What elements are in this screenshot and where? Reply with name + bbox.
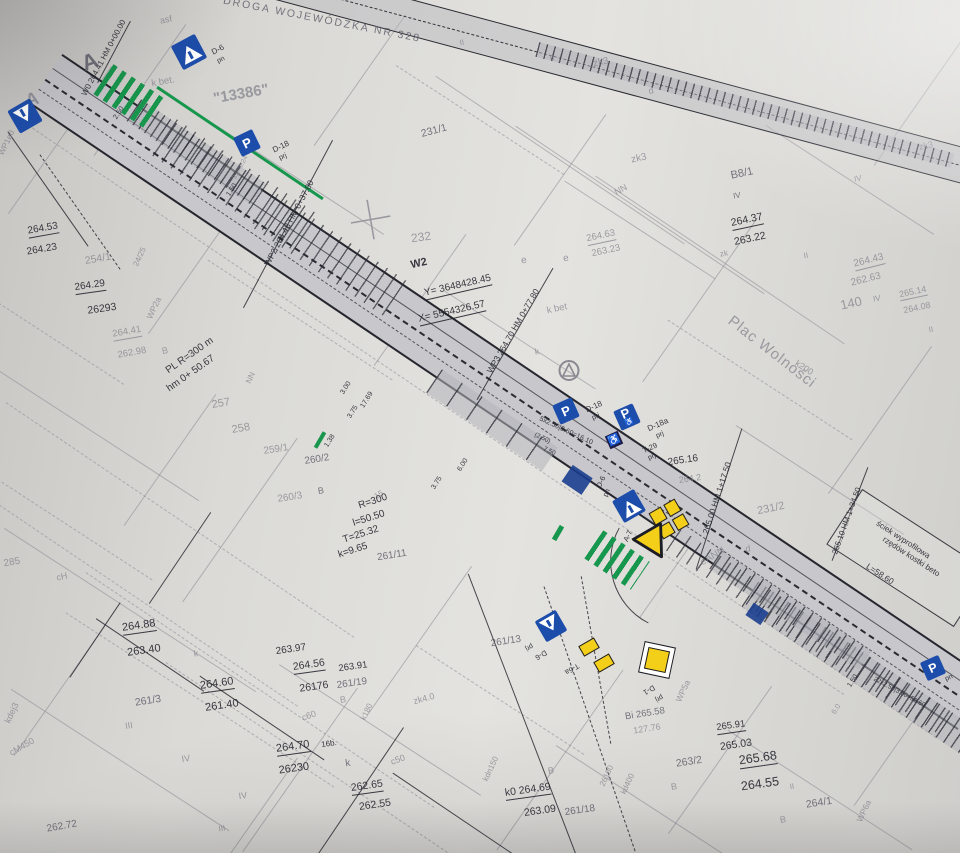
map-label: II — [928, 326, 934, 335]
priority-road-sign-icon — [638, 641, 676, 679]
map-label: 262.65 — [350, 779, 384, 796]
map-label: k180 — [360, 702, 375, 721]
map-label: 264.08 — [903, 301, 932, 316]
map-label: 16b. — [321, 739, 338, 749]
map-label: 263/2 — [675, 755, 703, 769]
map-label: B — [670, 782, 677, 792]
map-label: 264.60 — [199, 676, 234, 694]
map-label: c50 — [390, 753, 407, 766]
map-label: k bet — [546, 302, 568, 316]
map-label: kdn150 — [482, 755, 500, 782]
map-label: 264.55 — [740, 775, 780, 793]
map-label: cM450 — [8, 736, 36, 757]
map-label: kd400 — [620, 772, 636, 795]
map-label: B — [339, 695, 346, 705]
map-label: 264.41 — [112, 325, 143, 341]
cadastral-line — [0, 493, 298, 706]
cadastral-line — [11, 689, 230, 831]
map-label: III — [218, 825, 226, 834]
map-label: cH — [56, 571, 69, 582]
map-label: 264.56 — [292, 658, 326, 675]
map-label: 263.23 — [591, 243, 621, 258]
map-label: 26293 — [87, 302, 117, 316]
cadastral-line — [368, 566, 472, 714]
map-label: 127.76 — [633, 722, 662, 735]
disabled-parking-sign-icon: P♿ — [613, 403, 641, 431]
map-label: 264.29 — [74, 279, 106, 295]
map-label: 3.75 — [346, 404, 359, 419]
map-label: 264.43 — [853, 252, 886, 271]
map-label: 231/1 — [420, 123, 448, 140]
cadastral-line — [182, 438, 298, 602]
boundary-line — [69, 602, 120, 677]
map-label: R=300 — [357, 493, 388, 512]
map-label: IV — [181, 754, 191, 764]
map-label: pn — [216, 55, 226, 65]
boundary-line — [393, 773, 518, 853]
map-label: k — [345, 759, 351, 770]
map-label: e — [562, 254, 569, 265]
map-label: 261/19 — [336, 677, 368, 691]
map-label: 263.91 — [338, 660, 368, 673]
map-label: zk4.0 — [412, 692, 435, 706]
map-label: c60 — [301, 709, 318, 722]
map-label: II — [803, 252, 809, 261]
map-label: k0 264.69 — [504, 782, 551, 801]
map-label: Bi 265.58 — [624, 706, 665, 722]
map-label: IV — [873, 294, 882, 303]
map-label: B8/1 — [730, 166, 754, 181]
map-label: Plac Wolności — [725, 313, 819, 391]
map-label: 264.53 — [27, 221, 59, 238]
map-label: 3.00 — [339, 380, 352, 395]
map-label: 265.14 — [898, 285, 927, 301]
map-label: k bet. — [151, 75, 176, 88]
boundary-line — [149, 512, 211, 604]
map-label: 261/18 — [564, 804, 596, 818]
map-label: 257 — [211, 397, 231, 411]
map-label: D-1 — [642, 684, 656, 697]
map-label: 3.75 — [430, 475, 443, 490]
cadastral-line — [564, 181, 716, 280]
map-label: 17.69 — [359, 391, 374, 410]
map-label: 254/1 — [84, 252, 112, 267]
map-label: 232 — [410, 230, 432, 245]
map-label: B — [317, 486, 324, 496]
map-label: D-18 — [271, 140, 290, 155]
map-label: kdej3 — [3, 701, 20, 724]
grid-cross-icon — [345, 194, 397, 250]
map-label: II — [789, 783, 795, 792]
map-label: 140 — [839, 294, 863, 311]
pedestrian-crossing-sign-icon — [535, 610, 568, 643]
map-label: prj — [278, 152, 288, 162]
map-label: 264/1 — [805, 796, 833, 810]
green-curb-line — [552, 525, 564, 541]
map-label: "13386" — [212, 82, 270, 106]
map-label: 260/3 — [277, 491, 303, 505]
map-label: 261/11 — [376, 549, 407, 564]
sign-plate-icon — [578, 637, 600, 656]
map-label: k — [534, 347, 540, 357]
cadastral-line — [416, 645, 584, 755]
map-label: D-6 — [534, 649, 548, 662]
map-label: 262.63 — [850, 271, 882, 288]
green-curb-line — [314, 431, 326, 449]
survey-point-icon — [558, 360, 580, 387]
map-label: 264.37 — [730, 212, 764, 231]
map-label: B — [779, 815, 786, 825]
map-label: 261/3 — [134, 694, 162, 708]
map-label: 263.40 — [127, 643, 162, 659]
map-label: 264.23 — [26, 242, 58, 257]
map-label: B — [547, 766, 554, 776]
map-label: 6.0 — [830, 703, 842, 716]
map-label: 263.22 — [733, 231, 767, 248]
map-label: 265.68 — [738, 749, 778, 769]
map-label: T-29 — [642, 442, 659, 455]
map-label: T-6a — [564, 662, 581, 676]
map-label: 265.03 — [719, 738, 752, 753]
map-label: prj — [654, 693, 664, 703]
map-label: B — [161, 346, 168, 356]
map-label: 231/2 — [756, 501, 785, 517]
map-label: 1.38 — [323, 433, 336, 448]
map-label: 26230 — [278, 761, 310, 776]
map-label: WP1ød — [0, 129, 16, 157]
map-label: 261.40 — [205, 698, 240, 714]
cadastral-line — [4, 528, 256, 692]
cadastral-line — [595, 176, 844, 345]
map-label: III — [125, 721, 134, 731]
map-label: 262.98 — [117, 346, 147, 360]
map-label: prj — [524, 642, 534, 652]
map-label: D-6 — [210, 43, 225, 56]
map-label: 262.72 — [46, 819, 78, 834]
map-label: 6.00 — [456, 457, 469, 472]
map-label: 258 — [231, 422, 251, 436]
map-canvas: DROGA WOJEWÓDZKA NR 328asf"13386"zk3IIII… — [0, 0, 960, 853]
map-label: zk — [719, 249, 728, 258]
plan-photo: DROGA WOJEWÓDZKA NR 328asf"13386"zk3IIII… — [0, 0, 960, 853]
map-label: W2 — [410, 257, 429, 271]
map-label: k — [193, 649, 199, 659]
map-label: 26176 — [299, 680, 329, 694]
map-label: asf — [159, 14, 173, 25]
cadastral-line — [6, 402, 355, 638]
map-label: NN — [613, 183, 629, 197]
pedestrian-crossing-sign-icon — [171, 34, 208, 71]
map-label: IV — [854, 174, 863, 183]
map-label: 264.88 — [121, 618, 156, 636]
map-label: prj — [655, 430, 665, 440]
map-label: e — [520, 256, 527, 267]
map-label: 263.09 — [523, 804, 556, 819]
map-label: 285 — [3, 557, 21, 570]
map-label: 264.70 — [275, 739, 310, 757]
map-label: 265.16 — [667, 454, 699, 468]
map-label: IV — [733, 191, 742, 200]
map-label: WP5a — [674, 679, 691, 704]
map-label: 24/25 — [132, 246, 148, 268]
map-label: 263.97 — [275, 643, 307, 657]
cadastral-line — [828, 346, 932, 494]
map-label: 260/2 — [304, 453, 330, 467]
map-label: 265.91 — [716, 719, 746, 734]
map-label: NN — [245, 371, 257, 385]
cadastral-line — [396, 65, 564, 175]
map-label: k=9.65 — [337, 542, 369, 561]
cadastral-line — [0, 275, 124, 385]
map-label: WP6a — [855, 799, 872, 824]
map-label: 261/13 — [490, 635, 522, 650]
map-label: zk3 — [630, 152, 647, 165]
map-label: IV — [238, 791, 248, 801]
